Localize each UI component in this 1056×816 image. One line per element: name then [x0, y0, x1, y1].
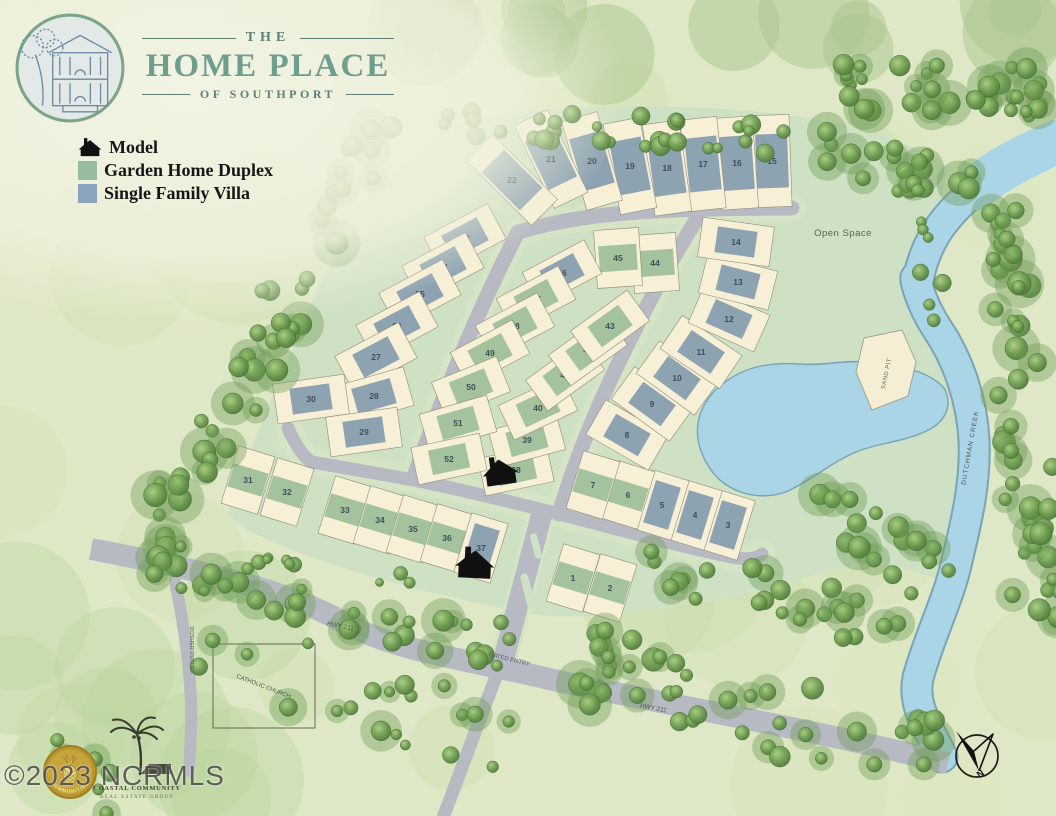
lot-number: 11	[697, 347, 706, 357]
lot-number: 31	[243, 475, 253, 485]
lot-number: 33	[340, 505, 350, 515]
lot-number: 36	[442, 533, 452, 543]
lot-number: 44	[650, 258, 660, 268]
tree-icon	[201, 564, 222, 585]
lot-number: 5	[660, 500, 665, 510]
tree-icon	[197, 462, 218, 483]
lot-number: 32	[282, 487, 292, 497]
tree-icon	[907, 531, 927, 551]
tree-icon	[689, 592, 702, 605]
tree-icon	[987, 301, 1003, 317]
legend-row-model: Model	[78, 136, 273, 159]
lot-number: 12	[724, 314, 734, 324]
tree-icon	[905, 587, 919, 601]
tree-icon	[958, 178, 979, 199]
tree-icon	[912, 264, 929, 281]
open-space-label: Open Space	[814, 228, 872, 239]
tree-icon	[793, 613, 806, 626]
tree-icon	[241, 648, 253, 660]
tree-icon	[263, 555, 272, 564]
tree-icon	[1004, 104, 1017, 117]
tree-icon	[883, 566, 901, 584]
lot-number: 8	[625, 430, 630, 440]
tree-icon	[743, 558, 763, 578]
tree-icon	[176, 582, 187, 593]
legend-row-duplex: Garden Home Duplex	[78, 159, 273, 182]
lot-number: 2	[608, 583, 613, 593]
tree-icon	[384, 687, 395, 698]
lot-number: 49	[485, 348, 495, 358]
tree-icon	[503, 716, 515, 728]
tree-icon	[468, 650, 488, 670]
tree-icon	[601, 650, 615, 664]
tree-icon	[1012, 320, 1024, 332]
tree-icon	[680, 669, 693, 682]
tree-icon	[744, 126, 755, 137]
tree-icon	[907, 720, 923, 736]
tree-icon	[639, 140, 651, 152]
tree-icon	[146, 565, 163, 582]
lot-number: 29	[359, 427, 369, 437]
tree-icon	[1008, 202, 1025, 219]
tree-icon	[924, 81, 941, 98]
tree-icon	[699, 562, 715, 578]
tree-icon	[487, 761, 499, 773]
tree-icon	[773, 716, 787, 730]
tree-icon	[394, 566, 408, 580]
tree-icon	[276, 328, 296, 348]
tree-icon	[942, 564, 956, 578]
tree-icon	[777, 125, 791, 139]
tree-icon	[927, 314, 940, 327]
lot-number: 10	[672, 373, 682, 383]
tree-icon	[834, 603, 854, 623]
tree-icon	[467, 706, 484, 723]
tree-icon	[222, 393, 243, 414]
tree-icon	[847, 722, 866, 741]
tree-icon	[279, 698, 297, 716]
tree-icon	[622, 630, 642, 650]
lot-number: 9	[650, 399, 655, 409]
tree-icon	[442, 747, 459, 764]
homeplace-logo-badge	[14, 12, 126, 124]
tree-icon	[798, 727, 813, 742]
tree-icon	[383, 632, 402, 651]
tree-icon	[364, 682, 381, 699]
tree-icon	[1004, 587, 1020, 603]
lot-number: 52	[444, 454, 454, 464]
tree-icon	[400, 740, 410, 750]
tree-icon	[924, 710, 945, 731]
tree-icon	[250, 325, 267, 342]
lot-number: 17	[698, 159, 708, 169]
villa-swatch	[78, 184, 97, 203]
mls-watermark: ©2023 NCRMLS	[4, 760, 225, 792]
tree-icon	[596, 622, 613, 639]
lot-number: 39	[522, 435, 532, 445]
tree-icon	[1016, 58, 1036, 78]
lot-number: 27	[371, 352, 381, 362]
tree-icon	[381, 608, 398, 625]
lot-number: 13	[733, 277, 743, 287]
tree-icon	[670, 685, 683, 698]
tree-icon	[769, 746, 790, 767]
lot-number: 50	[466, 382, 476, 392]
lot-number: 19	[625, 161, 635, 171]
lot-45: 45	[594, 228, 643, 289]
tree-icon	[848, 536, 870, 558]
tree-icon	[250, 404, 263, 417]
tree-icon	[205, 633, 220, 648]
dosher-cutoff-label: DOSHER CUTOFF	[188, 626, 194, 674]
tree-icon	[756, 144, 774, 162]
tree-icon	[1003, 443, 1019, 459]
tree-icon	[371, 721, 391, 741]
tree-icon	[289, 594, 306, 611]
tree-icon	[719, 691, 737, 709]
tree-icon	[934, 274, 952, 292]
tree-icon	[818, 153, 836, 171]
tree-icon	[668, 133, 687, 152]
model-home-icon	[78, 136, 102, 159]
tree-icon	[493, 615, 508, 630]
tree-icon	[867, 757, 882, 772]
tree-icon	[194, 414, 208, 428]
tree-icon	[886, 140, 903, 157]
lot-number: 6	[626, 490, 631, 500]
tree-icon	[817, 122, 836, 141]
tree-icon	[433, 610, 454, 631]
tree-icon	[990, 387, 1008, 405]
tree-icon	[916, 757, 931, 772]
tree-icon	[839, 86, 859, 106]
tree-icon	[579, 676, 593, 690]
legend: Model Garden Home Duplex Single Family V…	[78, 136, 273, 205]
tree-icon	[1030, 522, 1052, 544]
tree-icon	[929, 58, 945, 74]
tree-icon	[265, 601, 284, 620]
tree-icon	[302, 638, 313, 649]
legend-model-label: Model	[109, 137, 158, 158]
tree-icon	[713, 143, 723, 153]
legend-duplex-label: Garden Home Duplex	[104, 160, 273, 181]
tree-icon	[438, 680, 450, 692]
legend-villa-label: Single Family Villa	[104, 183, 250, 204]
tree-icon	[1012, 280, 1025, 293]
tree-icon	[751, 595, 767, 611]
tree-icon	[923, 233, 933, 243]
tree-icon	[889, 55, 910, 76]
tree-icon	[284, 558, 295, 569]
tree-icon	[427, 642, 444, 659]
tree-icon	[1020, 105, 1032, 117]
tree-icon	[175, 541, 186, 552]
tree-icon	[815, 752, 827, 764]
tree-icon	[801, 677, 823, 699]
tree-icon	[395, 675, 414, 694]
tree-icon	[739, 135, 753, 149]
tree-icon	[663, 579, 680, 596]
tree-icon	[391, 729, 402, 740]
tree-icon	[667, 654, 685, 672]
title-the: THE	[246, 30, 291, 46]
lot-number: 1	[571, 573, 576, 583]
tree-icon	[1003, 418, 1019, 434]
tree-icon	[1038, 498, 1056, 519]
lot-number: 16	[732, 158, 742, 168]
lot-number: 7	[591, 480, 596, 490]
tree-icon	[144, 483, 167, 506]
tree-icon	[965, 166, 978, 179]
tree-icon	[1028, 353, 1046, 371]
tree-icon	[229, 357, 249, 377]
tree-icon	[966, 90, 985, 109]
tree-icon	[842, 491, 859, 508]
development-title: THE HOME PLACE OF SOUTHPORT	[142, 30, 394, 102]
title-main: HOME PLACE	[142, 49, 394, 84]
lot-number: 18	[662, 163, 672, 173]
tree-icon	[629, 687, 645, 703]
tree-icon	[653, 650, 667, 664]
lot-number: 30	[306, 394, 316, 404]
header: THE HOME PLACE OF SOUTHPORT	[14, 12, 394, 124]
tree-icon	[623, 661, 636, 674]
tree-icon	[911, 184, 924, 197]
lot-number: 34	[375, 515, 385, 525]
tree-icon	[876, 618, 892, 634]
tree-icon	[869, 506, 882, 519]
tree-icon	[670, 114, 684, 128]
tree-icon	[491, 660, 502, 671]
tree-icon	[644, 544, 660, 560]
tree-icon	[331, 705, 343, 717]
tree-icon	[632, 107, 650, 125]
tree-icon	[266, 359, 288, 381]
duplex-swatch	[78, 161, 97, 180]
lot-number: 37	[476, 543, 486, 553]
legend-row-villa: Single Family Villa	[78, 182, 273, 205]
tree-icon	[735, 726, 750, 741]
tree-icon	[924, 299, 936, 311]
lot-number: 4	[693, 510, 698, 520]
tree-icon	[503, 633, 516, 646]
title-subtitle: OF SOUTHPORT	[200, 87, 336, 102]
lot-number: 35	[408, 524, 418, 534]
tree-icon	[1028, 599, 1050, 621]
lot-number: 3	[726, 520, 731, 530]
brokerage-subtitle: REAL ESTATE GROUP	[100, 795, 174, 800]
tree-icon	[689, 706, 707, 724]
tree-icon	[375, 578, 383, 586]
tree-icon	[999, 231, 1016, 248]
lot-number: 43	[605, 321, 615, 331]
lot-number: 28	[369, 391, 379, 401]
tree-icon	[986, 252, 1000, 266]
tree-icon	[833, 54, 854, 75]
lot-number: 14	[731, 237, 741, 247]
lot-number: 40	[533, 403, 543, 413]
site-plan-page: 1234567891011121314151617181920212223242…	[0, 0, 1056, 816]
lot-number: 51	[453, 418, 463, 428]
tree-icon	[51, 733, 65, 747]
lot-number: 45	[613, 253, 623, 263]
tree-icon	[403, 616, 415, 628]
